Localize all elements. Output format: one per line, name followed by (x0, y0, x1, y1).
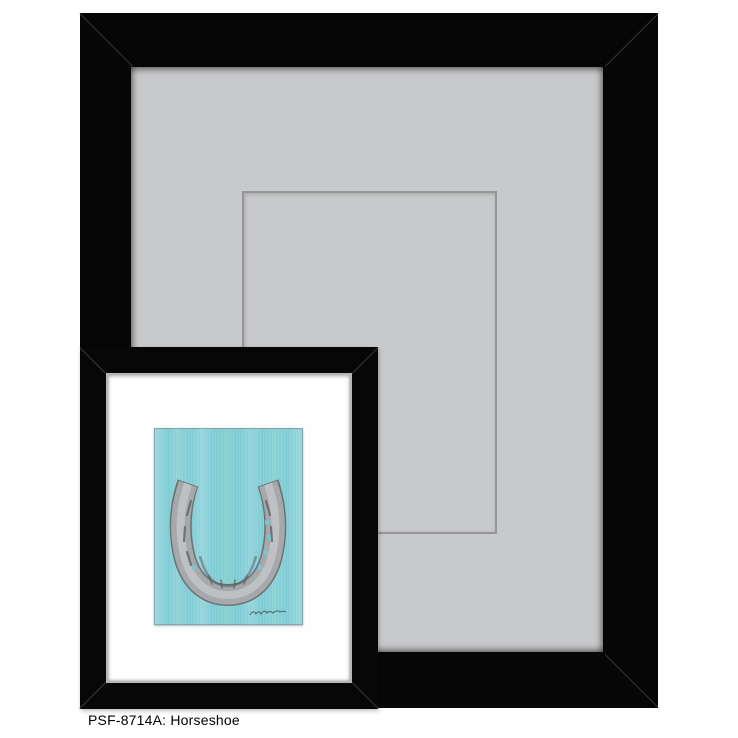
horseshoe-artwork (155, 429, 302, 624)
inset-frame (80, 347, 378, 709)
inset-frame-silver-lip (106, 373, 352, 683)
nail-slits (184, 501, 272, 565)
miter-line (79, 347, 106, 374)
miter-line (605, 654, 659, 708)
product-caption: PSF-8714A: Horseshoe (88, 712, 240, 728)
artist-signature (250, 611, 286, 615)
miter-line (352, 682, 379, 709)
miter-line (79, 13, 133, 67)
inset-frame-mat (108, 375, 350, 681)
horseshoe-canvas (154, 428, 303, 625)
product-image: PSF-8714A: Horseshoe (0, 0, 738, 738)
miter-line (352, 347, 379, 374)
miter-line (79, 682, 106, 709)
miter-line (605, 13, 659, 67)
